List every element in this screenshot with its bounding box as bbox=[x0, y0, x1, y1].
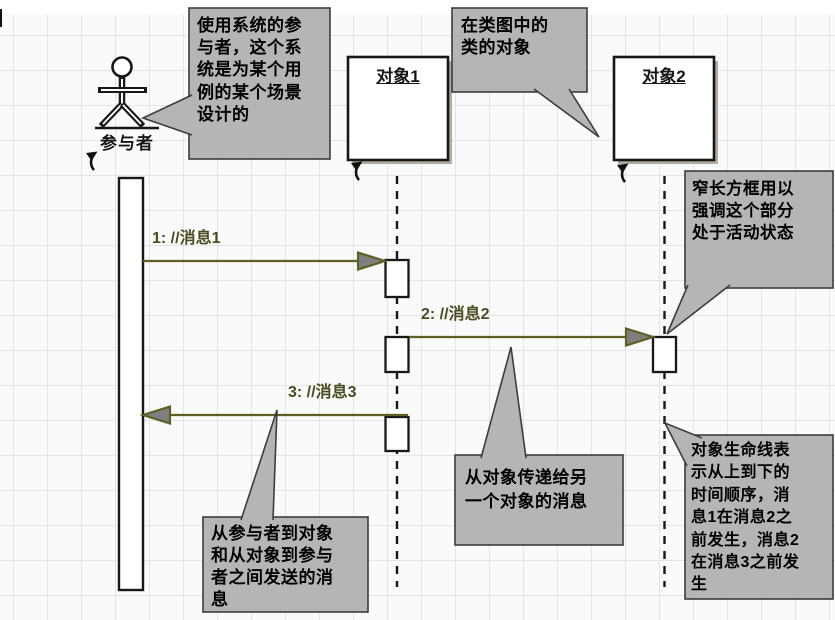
callout-actor-note-text: 使用系统的参 与者，这个系 统是为某个用 例的某个场景 设计的 bbox=[197, 15, 327, 126]
callout-tail bbox=[481, 347, 526, 458]
callout-tail bbox=[241, 410, 277, 520]
object1-activation-3 bbox=[386, 417, 409, 451]
actor-activation-bar bbox=[119, 178, 143, 590]
actor-label: 参与者 bbox=[93, 129, 161, 154]
callout-tail bbox=[534, 89, 599, 137]
object1-activation-2 bbox=[386, 337, 409, 372]
message-1-arrow bbox=[143, 253, 385, 270]
object2-title: 对象2 bbox=[614, 62, 714, 87]
object2-activation-1 bbox=[653, 337, 676, 372]
callout-activation-note-text: 窄长方框用以 强调这个部分 处于活动状态 bbox=[692, 178, 830, 245]
shape-anchor-arrow-icon bbox=[617, 164, 629, 183]
actor-head bbox=[113, 58, 132, 77]
callout-tail bbox=[667, 285, 730, 334]
message-2-arrow bbox=[409, 329, 653, 346]
message-3-arrowhead bbox=[143, 407, 170, 424]
message-3-label: 3: //消息3 bbox=[288, 385, 356, 401]
message-2-arrowhead bbox=[626, 329, 653, 346]
callout-object-message-note bbox=[455, 347, 623, 545]
message-2-label: 2: //消息2 bbox=[421, 307, 489, 323]
sequence-diagram-canvas: 参与者 对象1 对象2 1: //消息1 2: //消息2 3: //消息3 使… bbox=[0, 0, 835, 620]
shape-anchor-arrow-icon bbox=[86, 152, 98, 171]
callout-lifeline-note-text: 对象生命线表 示从上到下的 时间顺序，消 息1在消息2之 前发生，消息2 在消息… bbox=[691, 440, 831, 597]
message-1-arrowhead bbox=[358, 253, 385, 270]
object1-activation-1 bbox=[386, 260, 409, 297]
object1-title: 对象1 bbox=[348, 62, 448, 87]
message-1-label: 1: //消息1 bbox=[152, 231, 220, 247]
callout-object-message-note-text: 从对象传递给另 一个对象的消息 bbox=[465, 466, 620, 514]
callout-actor-message-note-text: 从参与者到对象 和从对象到参与 者之间发送的消 息 bbox=[211, 523, 361, 611]
shape-anchor-arrow-icon bbox=[351, 162, 363, 181]
callout-object-note-text: 在类图中的 类的对象 bbox=[461, 15, 583, 59]
